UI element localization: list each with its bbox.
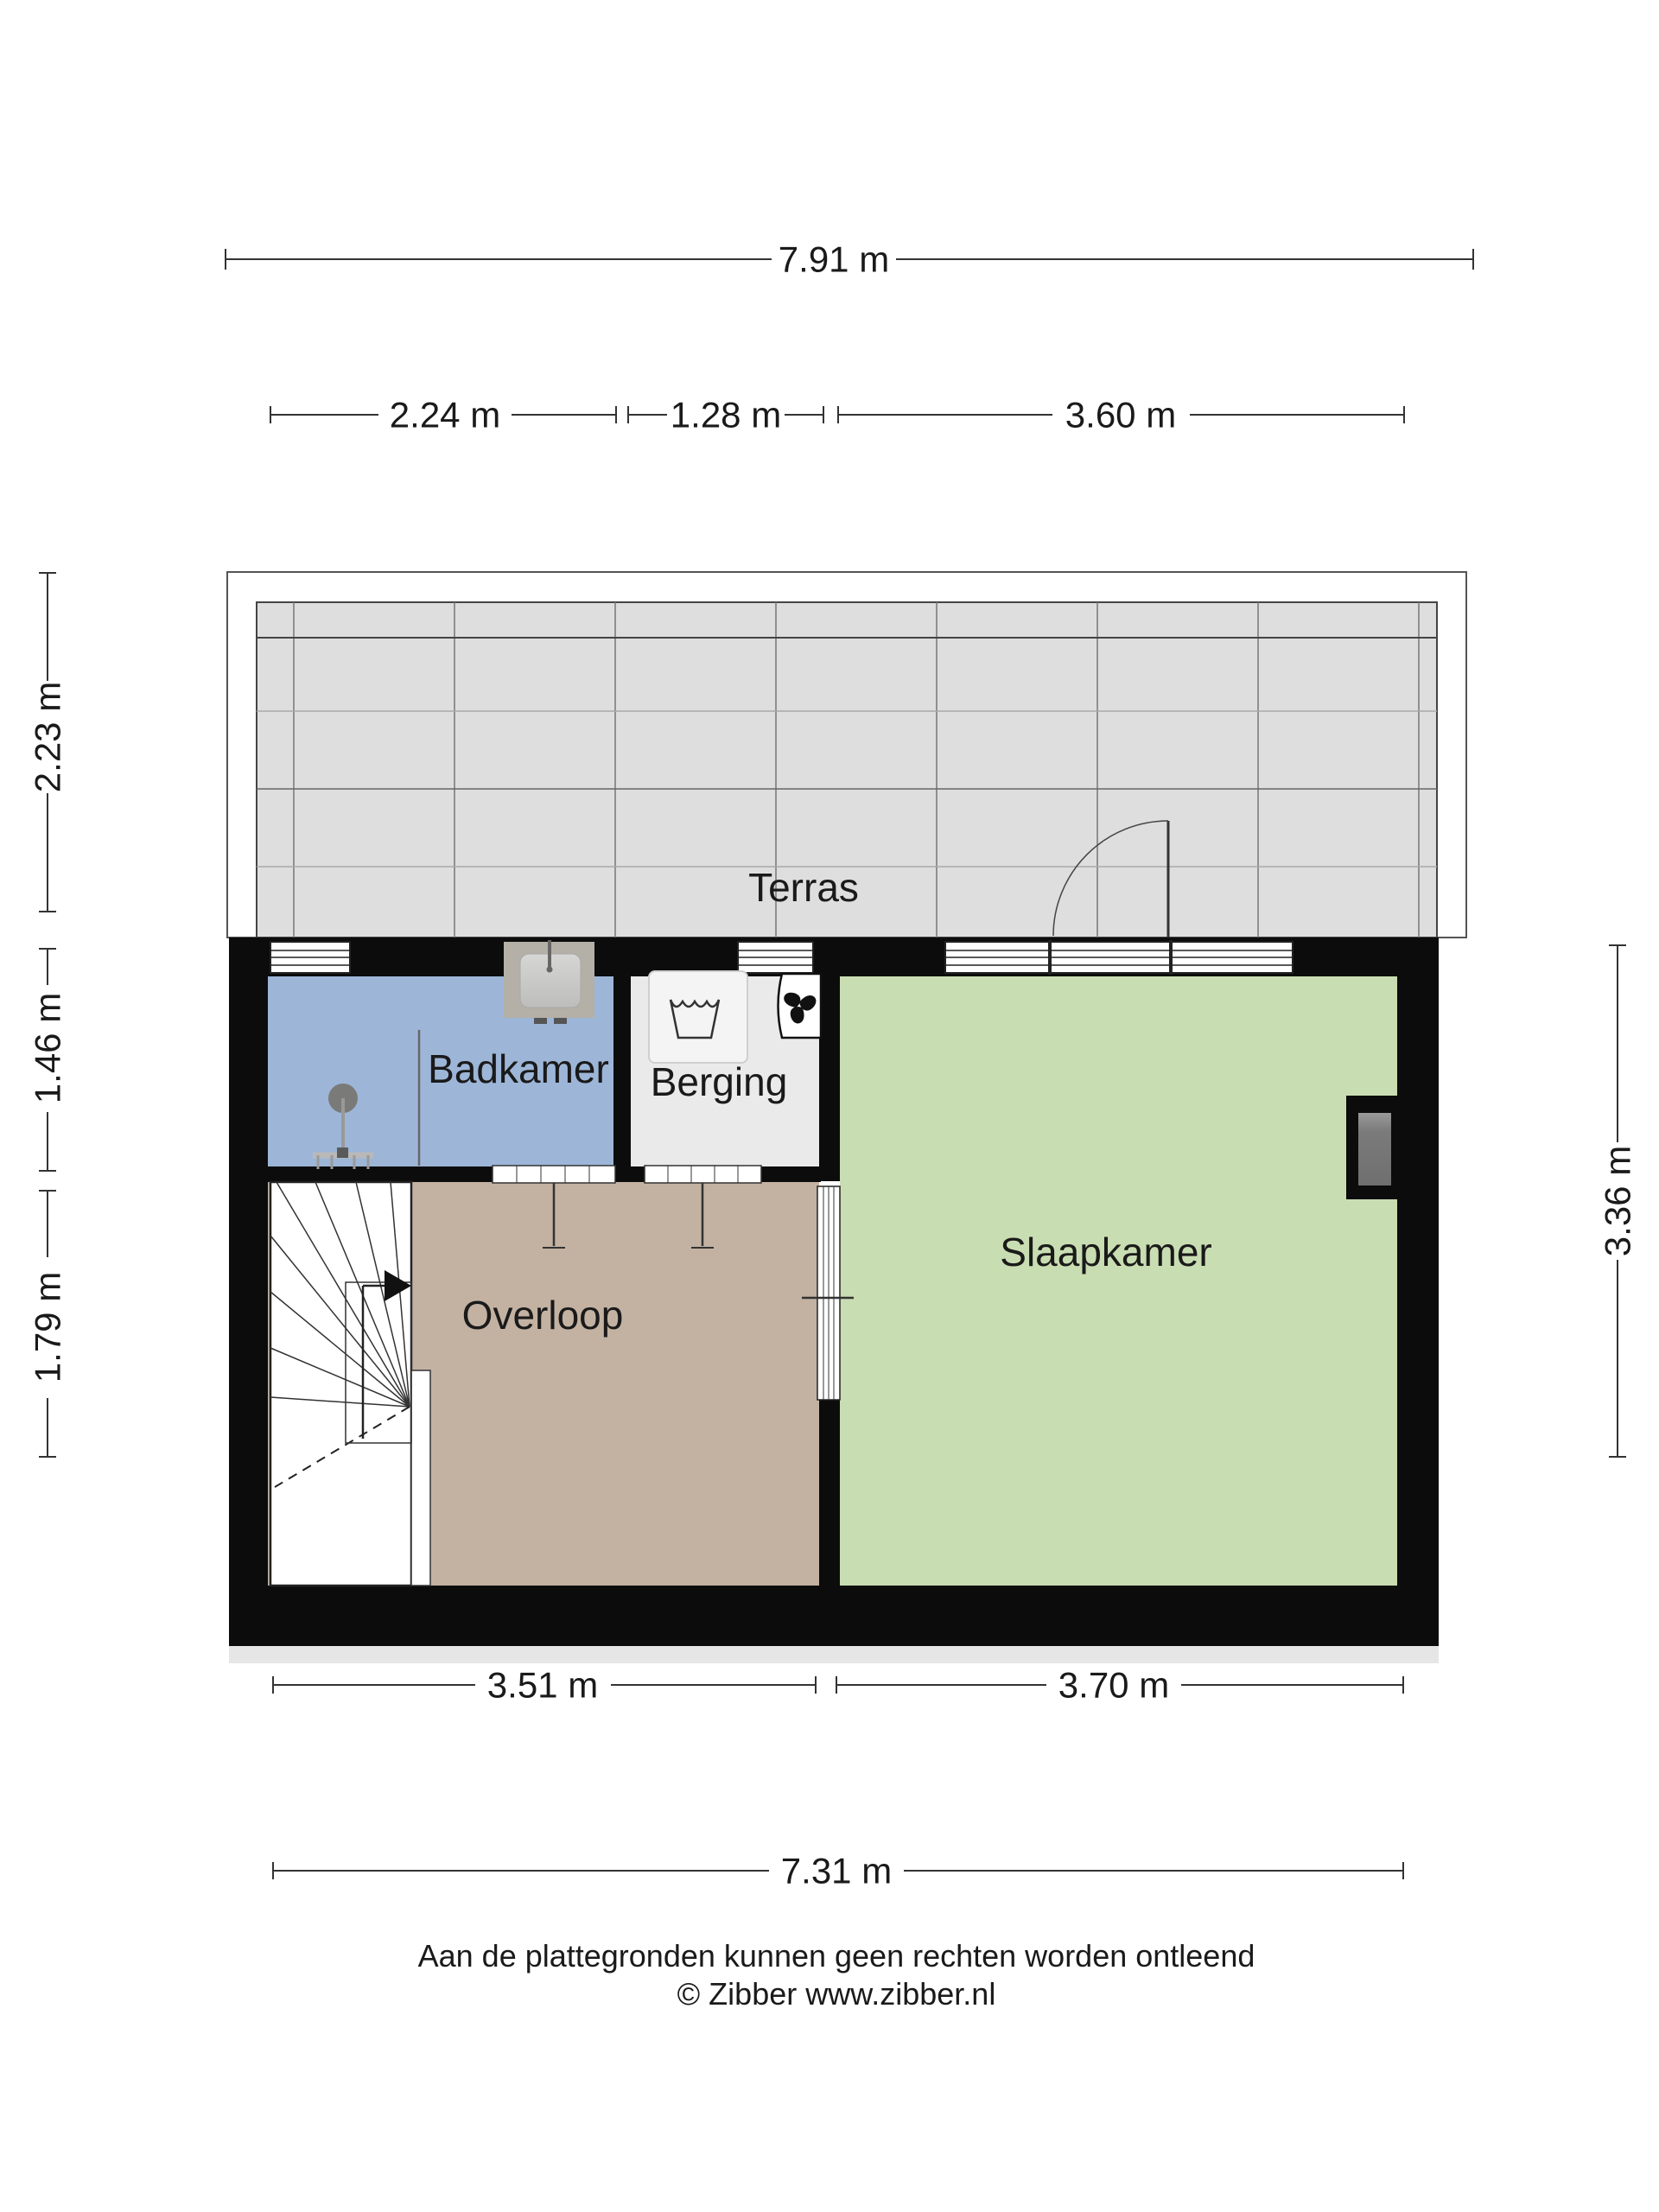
terras-area: Terras (227, 572, 1466, 938)
dim-top-seg1: 2.24 m (390, 395, 500, 435)
dim-top-total: 7.91 m (779, 239, 889, 280)
dim-left-1: 2.23 m (28, 682, 68, 792)
wall-left (229, 938, 268, 1646)
wall-overloop-slaapkamer (819, 1400, 840, 1586)
dim-right: 3.36 m (1598, 1146, 1638, 1256)
floorplan-page: Terras (0, 0, 1659, 2212)
dim-left-3: 1.79 m (28, 1272, 68, 1382)
terras-label: Terras (748, 865, 859, 910)
room-slaapkamer (840, 976, 1397, 1586)
dim-top-seg3: 3.60 m (1065, 395, 1176, 435)
ventilation-unit-icon (779, 974, 822, 1038)
window-door-slaapkamer (945, 940, 1293, 975)
wall-badkamer-berging (613, 976, 631, 1166)
overloop-label: Overloop (462, 1293, 624, 1338)
footer-credit: © Zibber www.zibber.nl (677, 1976, 996, 2012)
wall-bottom (229, 1586, 1439, 1646)
washing-machine-icon (649, 971, 747, 1063)
stairs-banister (411, 1370, 430, 1586)
slaapkamer-label: Slaapkamer (1000, 1230, 1211, 1274)
footer-disclaimer: Aan de plattegronden kunnen geen rechten… (418, 1938, 1255, 1974)
floorplan-canvas: Terras (0, 0, 1659, 2212)
berging-label: Berging (651, 1059, 788, 1104)
sink-icon (504, 940, 594, 1024)
dim-bottom-seg1: 3.51 m (487, 1665, 598, 1706)
wall-right (1397, 938, 1439, 1646)
dim-bottom-total: 7.31 m (781, 1851, 892, 1891)
window-berging (738, 942, 813, 973)
wall-niche-window (1358, 1113, 1391, 1185)
badkamer-label: Badkamer (428, 1046, 609, 1091)
stairs (270, 1182, 430, 1586)
wall-berging-slaapkamer (819, 976, 840, 1181)
dim-top-seg2: 1.28 m (671, 395, 781, 435)
dim-bottom-seg2: 3.70 m (1058, 1665, 1169, 1706)
dim-left-2: 1.46 m (28, 993, 68, 1103)
window-badkamer (270, 942, 350, 973)
wall-shadow (229, 1646, 1439, 1663)
